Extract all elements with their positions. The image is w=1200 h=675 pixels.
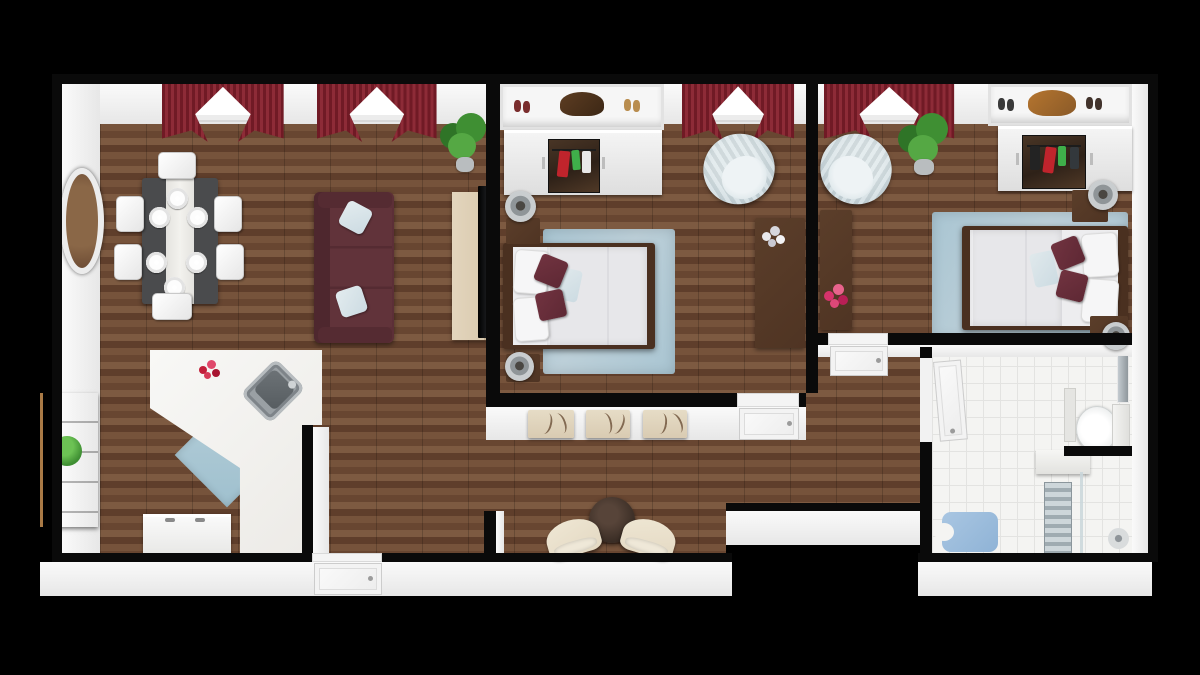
- bedroom2-bed: [962, 226, 1128, 330]
- wardrobe-handle: [1090, 153, 1093, 165]
- wardrobe-handle: [602, 157, 605, 169]
- front-door: [314, 563, 382, 595]
- table-lamp: [505, 352, 534, 381]
- door-handle: [876, 358, 881, 363]
- sink-basin: [253, 368, 295, 410]
- wardrobe-mirror: [548, 139, 600, 193]
- wall-canvas: [528, 410, 574, 438]
- bed-pillow: [1081, 232, 1120, 278]
- floor-plan-scene: [0, 0, 1200, 675]
- place-setting: [186, 252, 207, 273]
- place-setting: [146, 252, 167, 273]
- towel-radiator: [1044, 482, 1072, 555]
- dining-chair: [158, 152, 196, 179]
- bath-shelf: [1064, 388, 1076, 442]
- bathroom-door-jamb: [920, 358, 932, 442]
- bedroom1-bedroom2-wall: [806, 84, 818, 393]
- kitchen-halfwall-face: [313, 427, 329, 553]
- pink-flowers: [822, 284, 850, 312]
- dining-chair: [152, 293, 192, 320]
- shower-head: [1108, 528, 1129, 549]
- bedroom2-door: [830, 346, 888, 376]
- sofa-armrest: [318, 327, 392, 343]
- door-handle: [787, 421, 792, 426]
- bedroom2-plant: [898, 113, 950, 177]
- bathroom-mirror: [1118, 356, 1128, 402]
- west-wall: [52, 84, 62, 562]
- bedroom2-desk: [820, 210, 852, 330]
- south-wall-left: [52, 553, 732, 562]
- counter-flowers: [197, 360, 223, 382]
- accent-pillow: [534, 288, 567, 321]
- bath-mat: [942, 512, 998, 552]
- door-handle: [368, 576, 373, 581]
- green-garment: [571, 150, 581, 171]
- north-wall: [52, 74, 1158, 84]
- wardrobe-handle: [1016, 153, 1019, 165]
- wardrobe-handle: [542, 157, 545, 169]
- corner-plant: [438, 113, 488, 175]
- hallway-notch-wall-face: [726, 511, 920, 545]
- table-lamp: [1088, 180, 1118, 210]
- plant-pot: [456, 157, 474, 172]
- white-garment: [582, 151, 591, 173]
- front-door-threshold: [312, 553, 382, 562]
- place-setting: [187, 207, 208, 228]
- appliance-handle: [195, 518, 205, 522]
- leaf: [448, 133, 476, 159]
- shoes-icon: [1086, 97, 1093, 109]
- sofa-back: [314, 192, 330, 343]
- wardrobe-mirror: [1022, 135, 1086, 189]
- round-wall-mirror: [60, 168, 104, 274]
- bedroom1-wardrobe: [504, 130, 662, 195]
- green-garment: [1058, 146, 1066, 166]
- dining-chair: [214, 196, 242, 232]
- bedroom1-door: [739, 408, 799, 440]
- bedroom2-closet-shelf: [988, 84, 1132, 126]
- bedroom1-closet-shelf: [500, 84, 664, 130]
- shoes-icon: [624, 99, 631, 111]
- wall-canvas: [643, 410, 687, 438]
- red-dress: [557, 150, 571, 177]
- appliance-handle: [165, 518, 175, 522]
- bathroom-west-wall-lower: [920, 442, 932, 553]
- entry-stub-wall: [484, 511, 496, 555]
- kitchen-halfwall: [302, 425, 313, 553]
- handbag-icon: [1028, 90, 1076, 116]
- entry-stub-wall-face: [496, 511, 504, 555]
- door-handle: [950, 428, 955, 433]
- handbag-icon: [560, 92, 604, 116]
- dining-chair: [116, 196, 144, 232]
- table-lamp: [505, 191, 536, 222]
- nightstand: [506, 218, 540, 244]
- hallway-notch-wall: [726, 503, 922, 511]
- toilet-alcove-wall: [1064, 446, 1132, 456]
- east-wall: [1148, 84, 1158, 562]
- bath-mat-notch: [934, 523, 954, 541]
- dark-garment: [1070, 147, 1079, 169]
- dining-chair: [216, 244, 244, 280]
- toilet-tank: [1112, 404, 1130, 452]
- bottom-wall-face-bath: [918, 562, 1152, 596]
- bedroom2-wardrobe: [998, 126, 1132, 191]
- south-wall-bath: [918, 553, 1158, 562]
- kitchen-appliance: [143, 514, 231, 553]
- right-wall-face: [1132, 84, 1148, 553]
- plant-pot: [914, 159, 934, 175]
- shower-glass: [1080, 472, 1083, 553]
- shoes-icon: [998, 98, 1005, 110]
- wall-canvas: [586, 410, 630, 438]
- shoes-icon: [514, 100, 521, 112]
- dining-chair: [114, 244, 142, 280]
- red-dress: [1042, 146, 1057, 173]
- bedroom2-door-threshold: [828, 333, 888, 345]
- bedroom1-door-threshold: [737, 393, 799, 407]
- white-flowers: [760, 226, 788, 252]
- bottom-wall-face-left: [40, 562, 732, 596]
- place-setting: [167, 188, 188, 209]
- bathroom-west-wall-upper: [920, 347, 932, 358]
- living-bedroom1-wall: [486, 84, 500, 407]
- bedroom1-bed: [503, 243, 655, 349]
- place-setting: [149, 207, 170, 228]
- dark-garment: [1030, 146, 1040, 170]
